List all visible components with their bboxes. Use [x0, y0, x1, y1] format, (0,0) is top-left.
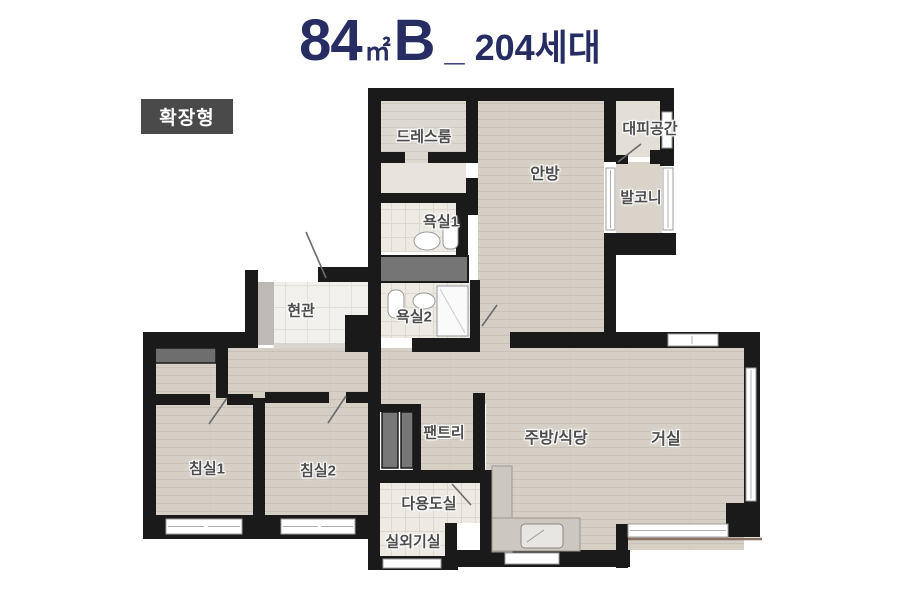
room-label-outdoor-unit-room: 실외기실 — [385, 531, 440, 552]
wall-bd1-top-a — [153, 394, 210, 405]
wall-bedroom-divider — [253, 398, 265, 523]
room-label-dressroom: 드레스룸 — [396, 126, 451, 147]
wall-bath1-top — [381, 193, 468, 203]
room-label-entrance: 현관 — [287, 300, 315, 321]
room-label-kitchen-dining: 주방/식당 — [524, 424, 587, 448]
floor-master-bedroom — [478, 101, 604, 348]
room-label-master-bedroom: 안방 — [530, 160, 559, 184]
wall-dress-master-a — [466, 88, 478, 155]
page: 84㎡B_204세대 확장형 — [0, 0, 900, 594]
wall-entrance-left — [245, 270, 258, 348]
wall-shelter-corner — [650, 150, 674, 164]
wall-bd1-top-b — [227, 394, 253, 405]
wall-master-shelter — [604, 96, 616, 162]
wall-entrance-top — [318, 267, 380, 282]
room-label-bathroom2: 욕실2 — [396, 306, 432, 327]
wall-top — [368, 88, 674, 101]
room-label-bedroom2: 침실2 — [300, 460, 336, 481]
pantry-closet-1 — [382, 412, 398, 468]
room-label-balcony: 발코니 — [620, 187, 661, 208]
wall-closet-right — [413, 412, 421, 470]
floor-dress-closet — [381, 163, 466, 193]
wall-topleft — [143, 332, 250, 348]
room-label-utility-room: 다용도실 — [401, 493, 456, 514]
wall-utility-top — [368, 470, 480, 483]
kitchen-stove — [521, 524, 563, 548]
wall-upper-step — [510, 332, 760, 348]
door-entrance — [306, 232, 326, 278]
room-label-bedroom1: 침실1 — [189, 458, 225, 479]
closet-between-baths — [376, 256, 468, 282]
wall-master-right — [604, 250, 616, 345]
room-label-shelter: 대피공간 — [622, 118, 677, 139]
wall-bath2-right — [470, 280, 480, 340]
wall-bd2-top-b — [346, 392, 368, 403]
wall-closet-top — [380, 404, 421, 412]
room-label-bathroom1: 욕실1 — [423, 211, 459, 232]
window-outdoor-unit — [383, 559, 441, 568]
wall-outdoor-right — [445, 523, 457, 570]
entrance-shoe-cabinet — [258, 282, 274, 345]
pantry-closet-2 — [401, 412, 413, 468]
wall-pantry-right — [473, 393, 485, 470]
wall-entrance-pillar — [345, 315, 368, 352]
wall-corridor-closet — [216, 348, 228, 398]
wall-bd2-top-a — [265, 392, 329, 403]
window-step-wall — [668, 334, 718, 346]
wall-dress-stub-a — [381, 152, 405, 163]
wall-utility-right — [480, 470, 493, 555]
room-label-living-room: 거실 — [651, 425, 680, 449]
bath1-sink — [414, 232, 440, 250]
wall-corner-br — [726, 503, 760, 537]
wall-left-outer — [143, 332, 156, 539]
wall-bath2-bottom — [412, 338, 480, 352]
corridor-closet — [154, 348, 216, 363]
wall-left-upper — [368, 88, 381, 404]
wall-dress-stub-b — [428, 152, 478, 163]
room-label-pantry: 팬트리 — [423, 422, 464, 443]
window-kitchen-bottom — [505, 553, 559, 564]
